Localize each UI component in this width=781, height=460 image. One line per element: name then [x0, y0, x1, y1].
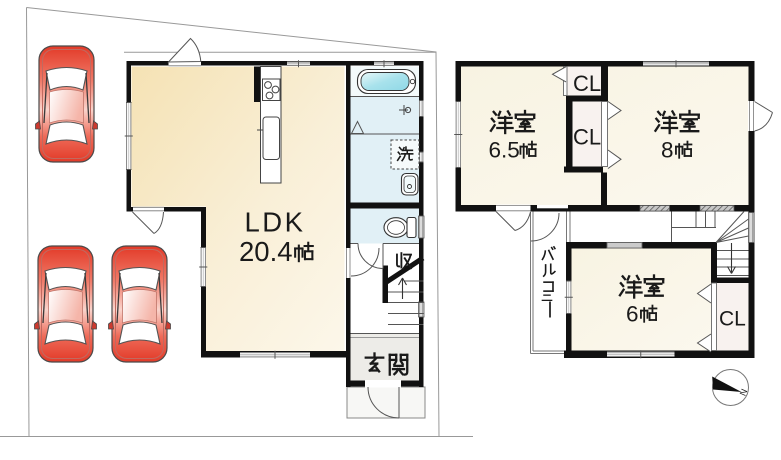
svg-text:8: 8	[661, 138, 674, 163]
svg-text:CL: CL	[573, 125, 601, 150]
svg-text:6: 6	[626, 302, 639, 327]
svg-text:CL: CL	[719, 308, 746, 331]
svg-text:20.4: 20.4	[239, 236, 293, 267]
svg-text:LDK: LDK	[245, 207, 306, 238]
svg-text:CL: CL	[573, 71, 601, 96]
svg-text:6.5: 6.5	[489, 138, 520, 163]
